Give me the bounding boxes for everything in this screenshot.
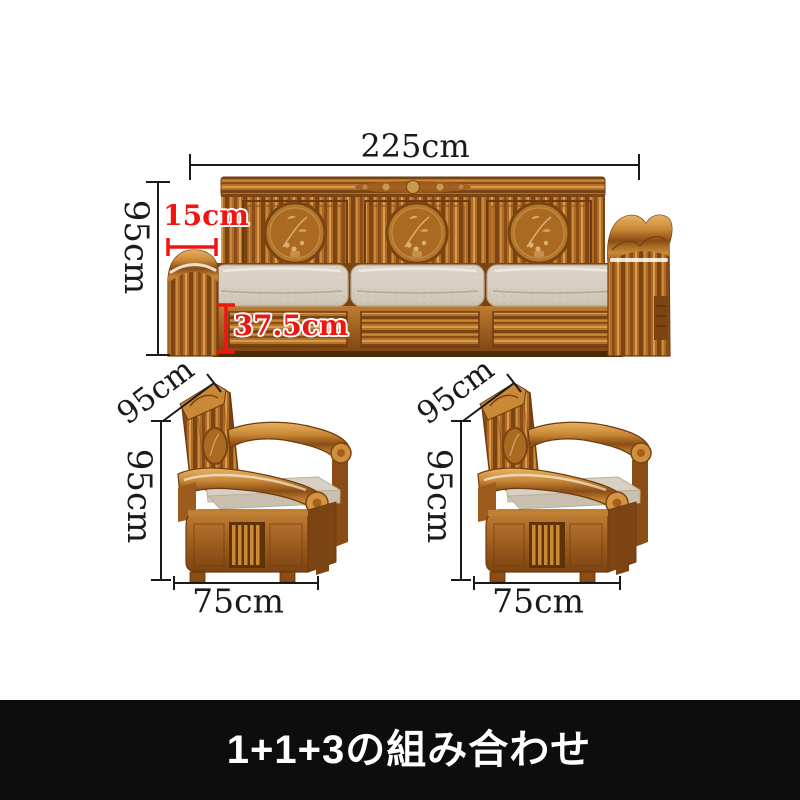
left-armchair-width-label: 75cm [192,585,284,618]
right-armchair-width-label: 75cm [492,585,584,618]
product-dimension-diagram: 225cm 95cm 15cm 37.5cm 95cm 95cm 75cm 95… [0,0,800,800]
sofa-armrest-width-label: 15cm [163,202,249,230]
left-armchair-image [178,383,351,582]
sofa-width-label: 225cm [360,130,469,162]
caption-bar: 1+1+3の組み合わせ [0,700,800,800]
left-armchair-height-label: 95cm [122,449,156,544]
sofa-seat-height-label: 37.5cm [234,312,349,340]
sofa-height-label: 95cm [119,200,153,295]
right-armchair-image [478,383,651,582]
sofa-cushions [214,263,621,306]
sofa-right-armrest [608,215,672,356]
sofa-left-armrest [168,250,218,356]
combination-caption: 1+1+3の組み合わせ [0,700,800,800]
right-armchair-height-label: 95cm [422,449,456,544]
